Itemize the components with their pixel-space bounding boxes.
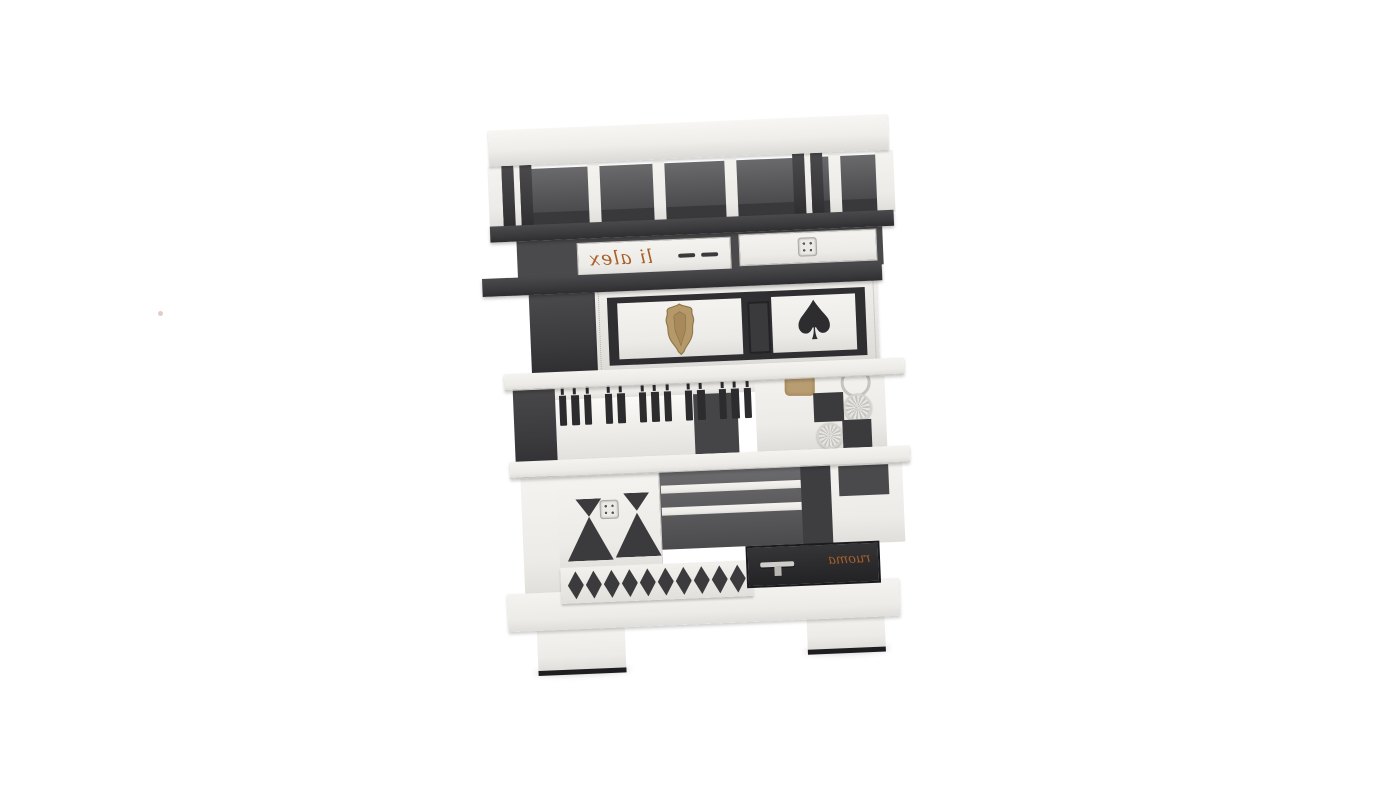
dark-vertical-partition <box>800 461 833 546</box>
piano-key <box>559 396 568 426</box>
rosette-icon <box>816 422 843 449</box>
piano-key <box>617 393 626 423</box>
cubby-black-panel <box>519 165 534 227</box>
square-knob-icon <box>599 500 619 520</box>
cubby-divider <box>724 158 739 218</box>
spade-door: ♠ <box>771 293 857 352</box>
t-handle-stem <box>774 567 781 576</box>
piano-key <box>663 391 672 421</box>
piano-key <box>731 388 740 418</box>
render-canvas: li alex <box>0 0 1400 788</box>
piano-key <box>605 394 614 424</box>
stray-pixel-artifact <box>158 311 163 316</box>
bowtie-door <box>556 472 663 576</box>
harlequin-diamond <box>693 566 710 595</box>
center-stile-recess <box>747 301 771 354</box>
checker-black-square <box>813 392 844 422</box>
cubby-divider <box>587 164 602 224</box>
harlequin-diamond <box>639 568 656 597</box>
cubby-divider <box>828 154 843 214</box>
drawer-handle <box>701 252 718 257</box>
harlequin-diamond <box>621 569 638 598</box>
rosette-icon <box>843 393 872 422</box>
piano-key <box>639 392 648 422</box>
piano-key <box>697 390 706 420</box>
spade-icon: ♠ <box>789 293 840 349</box>
amour-drawer: ruoma <box>745 541 881 589</box>
piano-key <box>651 392 660 422</box>
harlequin-diamond <box>603 570 620 599</box>
piano-key <box>584 395 593 425</box>
dice-drawer <box>738 228 877 266</box>
harlequin-diamond <box>657 567 674 596</box>
hourglass-triangle <box>575 498 602 517</box>
cubby-end-panel-right <box>875 150 896 213</box>
harlequin-diamond <box>585 570 602 599</box>
checker-black-square <box>842 419 872 448</box>
dice-ornament-icon <box>798 237 818 257</box>
cabinet-inner-frame: ♠ <box>607 287 868 366</box>
piano-key <box>743 388 752 418</box>
harlequin-diamond <box>729 564 746 593</box>
crest-door <box>617 298 743 359</box>
drawer-script-text: ruoma <box>827 551 870 568</box>
piano-key <box>571 395 580 425</box>
gold-crest-icon <box>660 301 700 357</box>
harlequin-diamond <box>567 571 584 600</box>
cubby-divider <box>652 161 667 221</box>
hourglass-triangle <box>614 512 662 558</box>
harlequin-diamond <box>675 567 692 596</box>
drawer-script-text: li alex <box>588 246 653 271</box>
patchwork-bookcase: li alex <box>486 110 915 679</box>
hourglass-triangle <box>623 492 650 511</box>
cubby-black-panel <box>810 153 825 215</box>
piano-key <box>685 390 694 420</box>
left-foot <box>537 625 627 676</box>
hourglass-triangle <box>566 516 614 562</box>
drawer-handle <box>678 253 695 258</box>
right-open-slot <box>838 464 889 496</box>
piano-key <box>719 389 728 419</box>
harlequin-diamond <box>711 565 728 594</box>
cabinet-carcass <box>529 292 602 377</box>
